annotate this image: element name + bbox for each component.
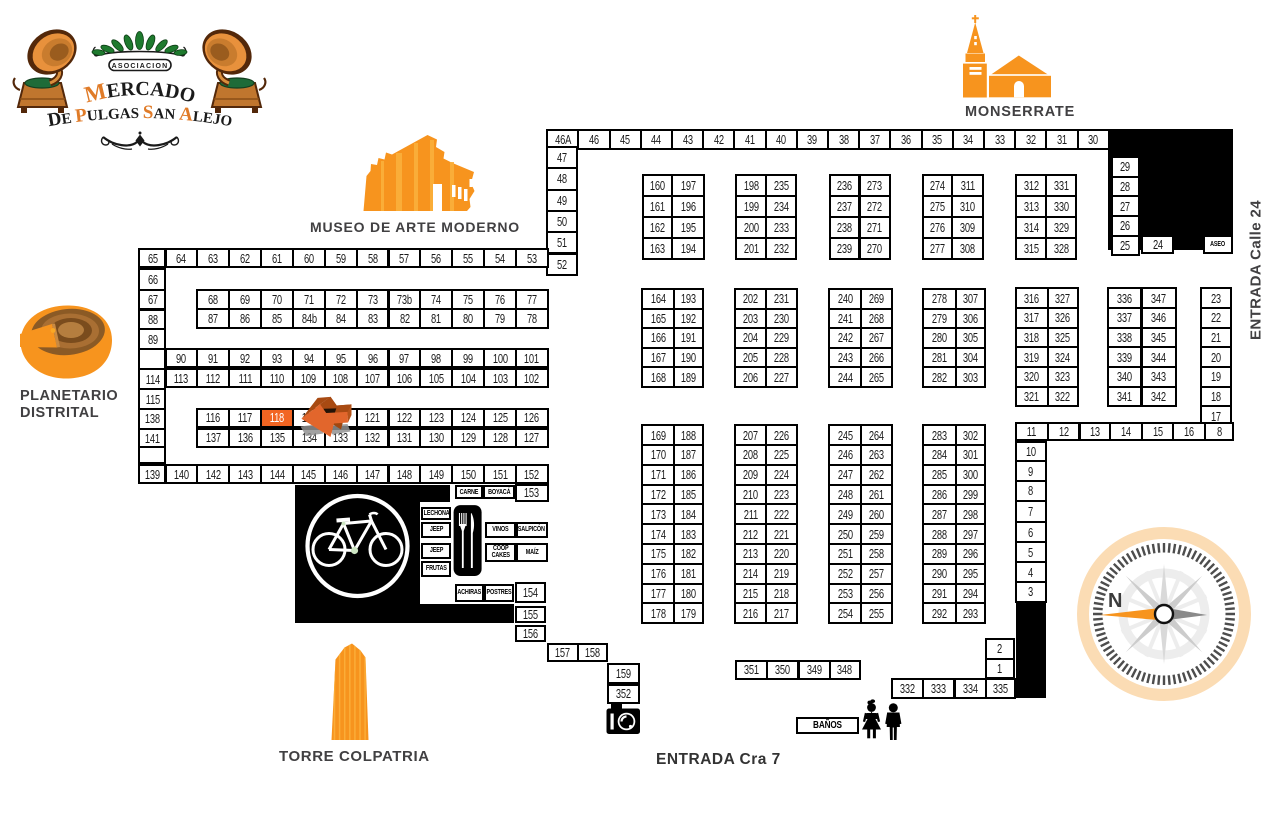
svg-text:N: N [1108, 590, 1122, 612]
svg-text:MERCADO: MERCADO [82, 78, 198, 108]
svg-text:ASOCIACION: ASOCIACION [112, 63, 169, 70]
svg-text:DE PULGAS SAN ALEJO: DE PULGAS SAN ALEJO [46, 102, 233, 131]
